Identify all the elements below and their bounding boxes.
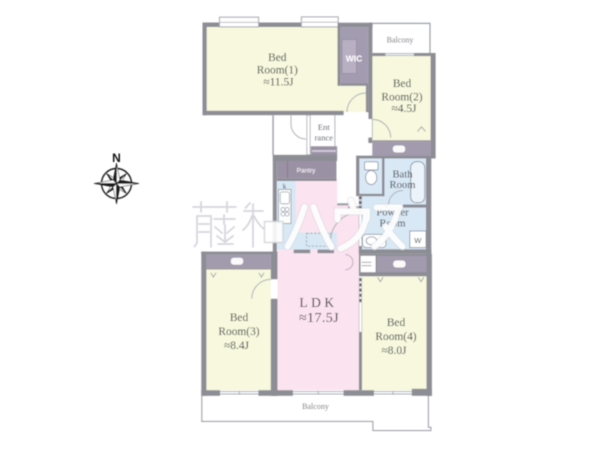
- svg-text:≈17.5J: ≈17.5J: [299, 311, 339, 326]
- svg-text:Pantry: Pantry: [297, 168, 317, 175]
- svg-text:Bed: Bed: [387, 317, 406, 329]
- svg-text:Bed: Bed: [393, 78, 412, 90]
- svg-text:Room(4): Room(4): [375, 331, 416, 343]
- svg-text:Room(3): Room(3): [218, 326, 259, 338]
- svg-text:k: k: [283, 183, 287, 191]
- svg-text:Bath: Bath: [392, 170, 413, 181]
- svg-text:Room(2): Room(2): [381, 92, 422, 104]
- svg-text:Balcony: Balcony: [387, 36, 414, 45]
- svg-text:Room: Room: [390, 180, 417, 191]
- svg-text:W: W: [414, 236, 422, 245]
- svg-text:≈8.0J: ≈8.0J: [382, 345, 407, 357]
- svg-text:LDK: LDK: [299, 295, 337, 310]
- svg-text:Room(1): Room(1): [257, 64, 298, 76]
- svg-text:≈11.5J: ≈11.5J: [263, 76, 294, 88]
- svg-text:N: N: [112, 151, 121, 165]
- svg-text:WIC: WIC: [346, 54, 363, 64]
- svg-text:≈8.4J: ≈8.4J: [224, 340, 249, 352]
- svg-text:Bed: Bed: [268, 52, 287, 64]
- svg-text:rance: rance: [315, 133, 334, 143]
- svg-text:Balcony: Balcony: [302, 402, 329, 411]
- svg-text:Ent: Ent: [318, 122, 330, 132]
- svg-text:Bed: Bed: [230, 312, 249, 324]
- svg-text:≈4.5J: ≈4.5J: [392, 103, 417, 115]
